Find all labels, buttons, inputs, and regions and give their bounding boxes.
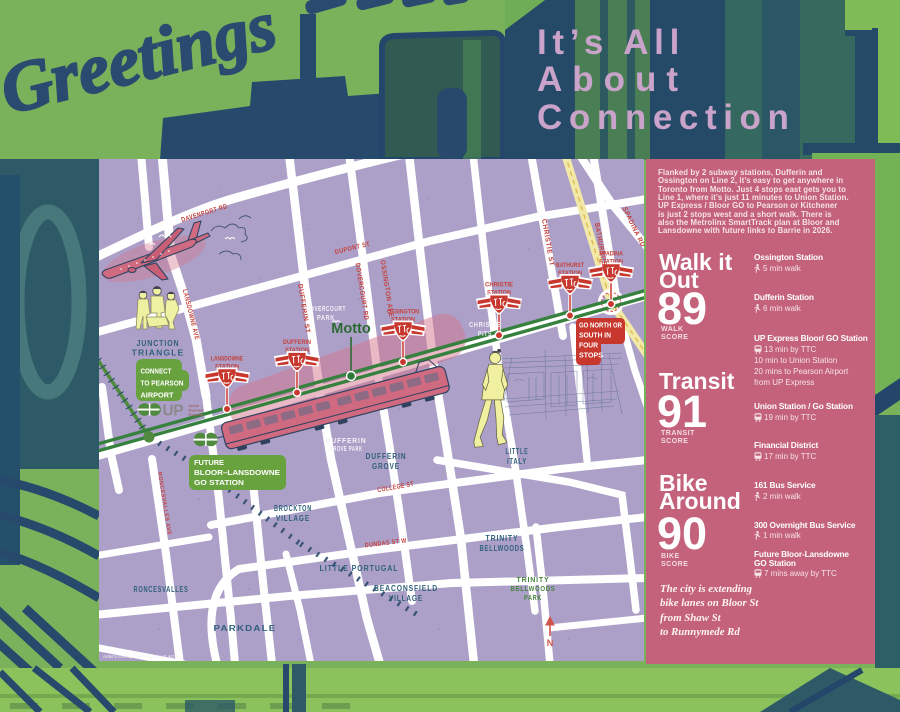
svg-text:JUNCTION: JUNCTION xyxy=(137,338,180,348)
svg-text:Union: Union xyxy=(189,404,200,408)
svg-text:VILLAGE: VILLAGE xyxy=(389,593,423,603)
svg-text:BELLWOODS: BELLWOODS xyxy=(480,543,525,553)
svg-text:RONCESVALLES: RONCESVALLES xyxy=(134,584,189,594)
svg-text:DUFFERIN: DUFFERIN xyxy=(326,438,367,445)
svg-text:GROVE PARK: GROVE PARK xyxy=(330,446,363,453)
svg-text:BLOOR–LANSDOWNE: BLOOR–LANSDOWNE xyxy=(194,468,280,477)
svg-text:GROVE: GROVE xyxy=(372,461,400,471)
svg-text:BEACONSFIELD: BEACONSFIELD xyxy=(374,583,438,593)
svg-text:PARKDALE: PARKDALE xyxy=(214,623,277,633)
svg-text:N: N xyxy=(547,638,554,648)
svg-text:SPADINA RD: SPADINA RD xyxy=(621,206,644,249)
svg-text:Motto: Motto xyxy=(331,321,371,337)
svg-text:VILLAGE: VILLAGE xyxy=(276,513,310,523)
svg-text:DUFFERIN: DUFFERIN xyxy=(283,339,311,346)
svg-text:BELLWOODS: BELLWOODS xyxy=(511,586,556,593)
svg-text:FUTURE: FUTURE xyxy=(194,458,224,467)
svg-text:TRINITY: TRINITY xyxy=(486,533,519,543)
svg-text:Artist's concept. Not to scale: Artist's concept. Not to scale. E.&O.E. xyxy=(103,654,180,659)
svg-text:GO NORTH OR: GO NORTH OR xyxy=(579,321,623,330)
svg-text:PITS: PITS xyxy=(478,331,492,338)
svg-text:Express: Express xyxy=(189,413,204,417)
svg-text:BROCKTON: BROCKTON xyxy=(274,503,312,513)
svg-text:TO PEARSON: TO PEARSON xyxy=(141,379,184,388)
svg-text:CONNECT: CONNECT xyxy=(141,367,173,376)
svg-text:LITTLE: LITTLE xyxy=(506,446,529,456)
svg-text:BATHURST: BATHURST xyxy=(556,262,585,269)
svg-text:PARK: PARK xyxy=(317,315,335,322)
svg-text:OSSINGTON AVE: OSSINGTON AVE xyxy=(378,260,394,318)
svg-text:FOUR: FOUR xyxy=(579,341,599,350)
svg-text:AIRPORT: AIRPORT xyxy=(141,391,175,400)
svg-text:LITTLE PORTUGAL: LITTLE PORTUGAL xyxy=(320,563,399,573)
svg-text:CHRISTIE ST: CHRISTIE ST xyxy=(540,218,555,267)
svg-text:PARK: PARK xyxy=(524,595,542,602)
svg-text:Pearson: Pearson xyxy=(189,409,205,413)
svg-text:UP: UP xyxy=(163,403,184,420)
svg-text:ITALY: ITALY xyxy=(507,456,527,466)
svg-text:CHRISTIE: CHRISTIE xyxy=(469,322,501,329)
svg-text:TRIANGLE: TRIANGLE xyxy=(132,348,185,358)
svg-text:STOPS: STOPS xyxy=(579,351,603,360)
svg-text:DUFFERIN: DUFFERIN xyxy=(366,451,407,461)
svg-text:GO STATION: GO STATION xyxy=(194,478,244,487)
svg-text:LANSDOWNE: LANSDOWNE xyxy=(211,356,243,363)
svg-text:SOUTH IN: SOUTH IN xyxy=(579,331,611,340)
svg-text:DOVERCOURT: DOVERCOURT xyxy=(306,306,346,313)
svg-text:CHRISTIE: CHRISTIE xyxy=(485,282,513,289)
svg-text:TRINITY: TRINITY xyxy=(517,577,550,584)
